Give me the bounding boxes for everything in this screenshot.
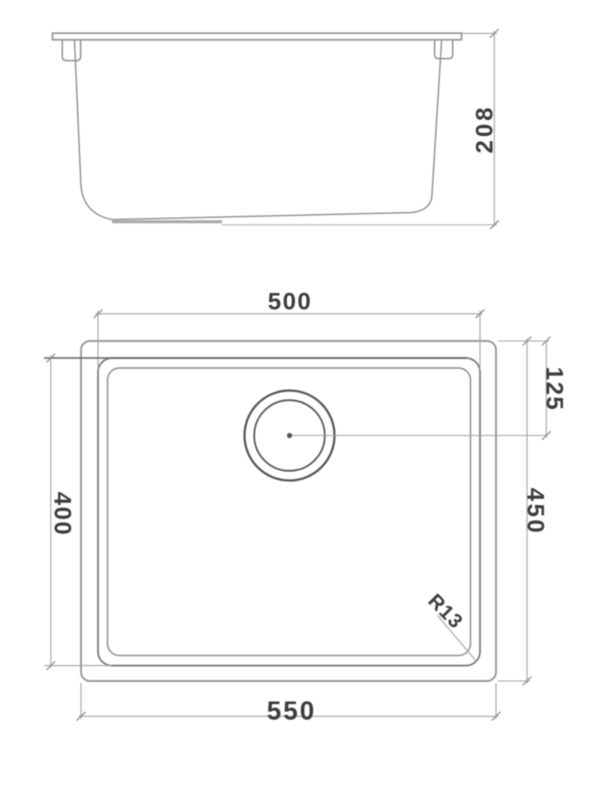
svg-text:450: 450: [522, 488, 549, 536]
svg-text:550: 550: [267, 696, 316, 726]
svg-text:208: 208: [472, 104, 499, 153]
svg-text:400: 400: [49, 492, 76, 537]
svg-text:500: 500: [268, 289, 313, 316]
svg-text:125: 125: [541, 367, 568, 412]
